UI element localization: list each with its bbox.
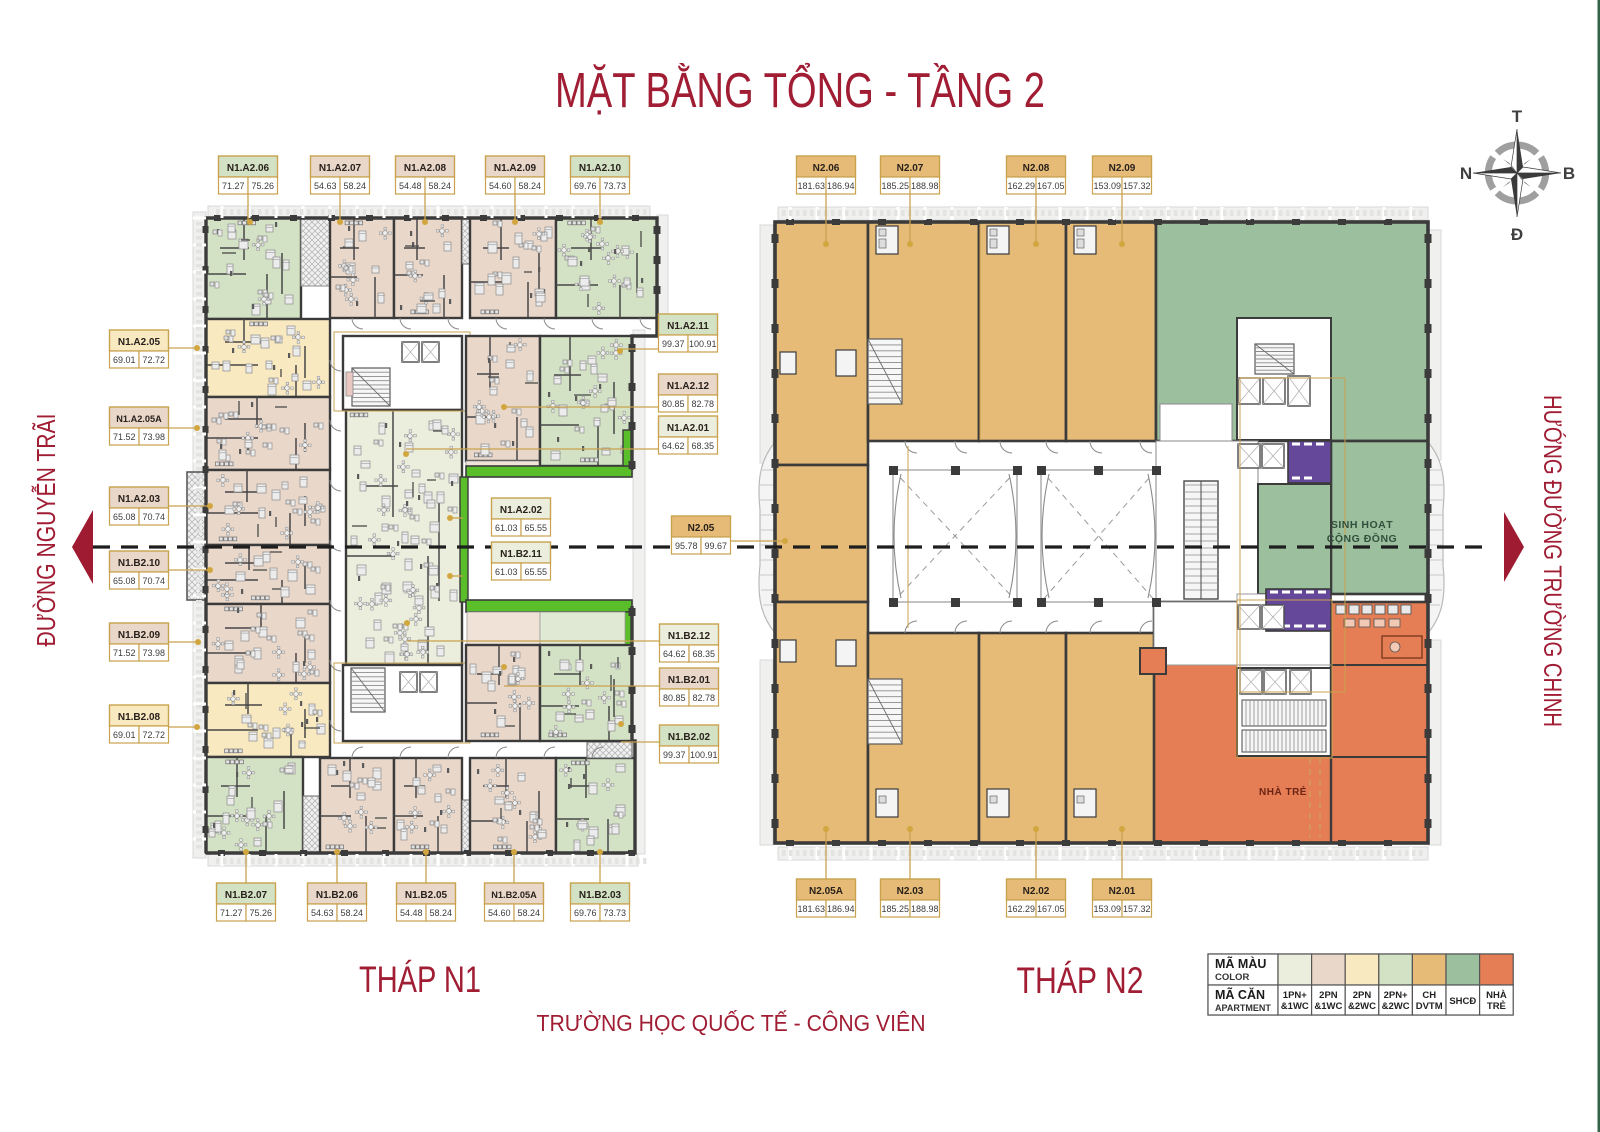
svg-text:80.85: 80.85 [662,399,685,409]
svg-text:71.52: 71.52 [113,432,136,442]
svg-text:B: B [1563,164,1575,183]
svg-text:N1.A2.09: N1.A2.09 [494,163,537,174]
svg-text:68.35: 68.35 [691,441,714,451]
svg-text:153.09: 153.09 [1093,181,1121,191]
svg-text:CH: CH [1422,990,1436,1001]
svg-text:58.24: 58.24 [428,181,451,191]
svg-text:N1.B2.02: N1.B2.02 [668,732,711,743]
svg-text:N1.A2.10: N1.A2.10 [579,163,622,174]
svg-text:157.32: 157.32 [1123,181,1151,191]
svg-text:70.74: 70.74 [142,512,165,522]
svg-text:MÃ CĂN: MÃ CĂN [1215,987,1265,1002]
svg-text:54.63: 54.63 [314,181,337,191]
svg-text:64.62: 64.62 [663,649,686,659]
svg-text:T: T [1512,107,1523,126]
svg-text:73.73: 73.73 [603,181,626,191]
svg-text:54.63: 54.63 [311,908,334,918]
svg-text:N1.B2.09: N1.B2.09 [118,630,161,641]
svg-text:72.72: 72.72 [142,730,165,740]
svg-text:75.26: 75.26 [251,181,274,191]
svg-text:N2.09: N2.09 [1109,163,1136,174]
svg-text:2PN: 2PN [1353,990,1372,1001]
svg-text:188.98: 188.98 [911,904,939,914]
svg-text:54.60: 54.60 [489,181,512,191]
svg-text:82.78: 82.78 [692,693,715,703]
svg-text:188.98: 188.98 [911,181,939,191]
svg-text:N1.A2.01: N1.A2.01 [667,423,710,434]
svg-text:54.48: 54.48 [400,908,423,918]
svg-text:58.24: 58.24 [343,181,366,191]
svg-text:N1.B2.06: N1.B2.06 [316,890,359,901]
svg-text:100.91: 100.91 [689,339,717,349]
svg-text:N2.08: N2.08 [1023,163,1050,174]
svg-text:69.76: 69.76 [574,181,597,191]
svg-text:54.48: 54.48 [399,181,422,191]
svg-text:58.24: 58.24 [517,908,540,918]
svg-text:58.24: 58.24 [429,908,452,918]
svg-text:71.52: 71.52 [113,648,136,658]
svg-text:N1.B2.01: N1.B2.01 [668,675,711,686]
svg-text:HƯỚNG ĐƯỜNG TRƯỜNG CHINH: HƯỚNG ĐƯỜNG TRƯỜNG CHINH [1538,395,1567,727]
svg-text:99.37: 99.37 [663,750,686,760]
svg-text:Đ: Đ [1511,225,1523,244]
svg-text:162.29: 162.29 [1007,904,1035,914]
svg-text:N1.A2.11: N1.A2.11 [667,321,709,332]
svg-text:72.72: 72.72 [142,355,165,365]
svg-text:95.78: 95.78 [675,541,698,551]
svg-text:75.26: 75.26 [249,908,272,918]
svg-text:APARTMENT: APARTMENT [1215,1003,1271,1013]
svg-text:N1.A2.03: N1.A2.03 [118,494,161,505]
svg-text:N2.02: N2.02 [1023,886,1050,897]
svg-text:71.27: 71.27 [220,908,243,918]
svg-text:CỘNG ĐỒNG: CỘNG ĐỒNG [1327,532,1397,545]
svg-text:167.05: 167.05 [1037,904,1065,914]
svg-text:N2.06: N2.06 [813,163,840,174]
svg-text:73.98: 73.98 [142,648,165,658]
svg-text:THÁP N1: THÁP N1 [359,959,481,1000]
svg-text:65.55: 65.55 [524,567,547,577]
svg-text:NHÀ TRẺ: NHÀ TRẺ [1259,785,1307,798]
svg-text:N2.01: N2.01 [1109,886,1136,897]
svg-text:THÁP N2: THÁP N2 [1017,960,1144,1001]
svg-text:&1WC: &1WC [1314,1001,1342,1012]
svg-text:N1.A2.08: N1.A2.08 [404,163,447,174]
svg-text:64.62: 64.62 [662,441,685,451]
svg-text:TRẺ: TRẺ [1487,1000,1506,1012]
svg-text:54.60: 54.60 [488,908,511,918]
svg-text:82.78: 82.78 [691,399,714,409]
svg-text:100.91: 100.91 [690,750,718,760]
svg-text:167.05: 167.05 [1037,181,1065,191]
svg-text:MÃ MÀU: MÃ MÀU [1215,956,1266,971]
svg-text:N1.B2.05: N1.B2.05 [405,890,448,901]
svg-text:N2.05A: N2.05A [809,886,843,897]
svg-text:186.94: 186.94 [827,904,855,914]
svg-text:58.24: 58.24 [340,908,363,918]
svg-text:68.35: 68.35 [692,649,715,659]
svg-text:69.01: 69.01 [113,730,136,740]
svg-text:58.24: 58.24 [518,181,541,191]
svg-text:TRƯỜNG HỌC QUỐC TẾ - CÔNG VIÊN: TRƯỜNG HỌC QUỐC TẾ - CÔNG VIÊN [537,1009,926,1036]
svg-text:69.76: 69.76 [574,908,597,918]
svg-text:70.74: 70.74 [142,576,165,586]
svg-text:COLOR: COLOR [1215,972,1249,983]
svg-text:N1.B2.10: N1.B2.10 [118,558,161,569]
svg-text:N2.05: N2.05 [688,523,715,534]
svg-text:N1.B2.07: N1.B2.07 [225,890,268,901]
svg-text:181.63: 181.63 [797,904,825,914]
svg-text:N1.B2.05A: N1.B2.05A [491,890,537,900]
svg-text:1PN+: 1PN+ [1283,990,1307,1001]
svg-text:61.03: 61.03 [495,523,518,533]
svg-text:162.29: 162.29 [1007,181,1035,191]
svg-text:N1.B2.12: N1.B2.12 [668,631,711,642]
svg-text:80.85: 80.85 [663,693,686,703]
svg-text:181.63: 181.63 [797,181,825,191]
svg-text:185.25: 185.25 [881,181,909,191]
svg-text:N1.B2.08: N1.B2.08 [118,712,161,723]
svg-text:DVTM: DVTM [1416,1001,1443,1012]
svg-text:153.09: 153.09 [1093,904,1121,914]
svg-text:SINH HOẠT: SINH HOẠT [1331,519,1393,531]
svg-text:157.32: 157.32 [1123,904,1151,914]
svg-text:N1.A2.05: N1.A2.05 [118,337,161,348]
svg-text:NHÀ: NHÀ [1486,990,1507,1001]
svg-text:N1.B2.11: N1.B2.11 [500,549,542,560]
svg-text:2PN+: 2PN+ [1384,990,1408,1001]
svg-text:N1.A2.02: N1.A2.02 [500,505,543,516]
svg-text:185.25: 185.25 [881,904,909,914]
svg-text:65.08: 65.08 [113,576,136,586]
svg-text:N: N [1460,164,1472,183]
svg-text:N1.B2.03: N1.B2.03 [579,890,622,901]
svg-text:73.73: 73.73 [603,908,626,918]
svg-text:N1.A2.05A: N1.A2.05A [116,414,162,424]
svg-text:ĐƯỜNG NGUYỄN TRÃI: ĐƯỜNG NGUYỄN TRÃI [31,414,61,647]
svg-text:71.27: 71.27 [222,181,245,191]
svg-text:99.67: 99.67 [704,541,727,551]
svg-text:N1.A2.07: N1.A2.07 [319,163,362,174]
svg-text:73.98: 73.98 [142,432,165,442]
svg-text:MẶT BẰNG TỔNG - TẦNG 2: MẶT BẰNG TỔNG - TẦNG 2 [555,63,1045,118]
svg-text:N2.03: N2.03 [897,886,924,897]
svg-text:186.94: 186.94 [827,181,855,191]
svg-text:&1WC: &1WC [1281,1001,1309,1012]
svg-text:65.55: 65.55 [524,523,547,533]
svg-text:2PN: 2PN [1319,990,1338,1001]
svg-text:SHCĐ: SHCĐ [1449,996,1476,1007]
svg-text:69.01: 69.01 [113,355,136,365]
svg-text:N1.A2.12: N1.A2.12 [667,381,710,392]
svg-text:N1.A2.06: N1.A2.06 [227,163,270,174]
svg-text:&2WC: &2WC [1348,1001,1376,1012]
svg-text:N2.07: N2.07 [897,163,924,174]
svg-text:&2WC: &2WC [1382,1001,1410,1012]
svg-text:61.03: 61.03 [495,567,518,577]
svg-text:65.08: 65.08 [113,512,136,522]
svg-text:99.37: 99.37 [662,339,685,349]
